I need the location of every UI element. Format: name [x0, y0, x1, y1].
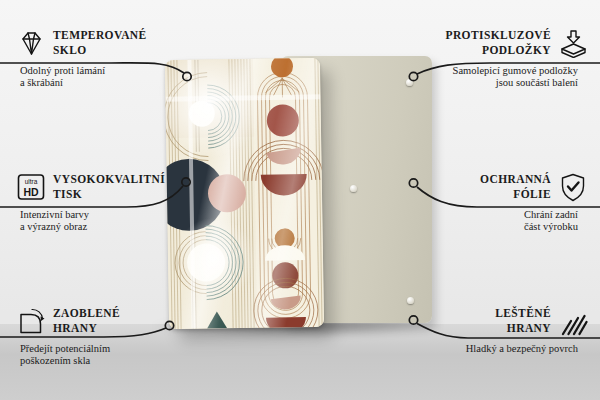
polished-edges-icon — [558, 306, 588, 336]
feature-subtitle: Předejít potenciálním poškozením skla — [20, 343, 110, 367]
feature-title: ZAOBLENÉ HRANY — [53, 306, 120, 336]
feature-subtitle: Odolný proti lámání a škrábání — [20, 65, 105, 89]
anti-slip-pads-icon — [558, 28, 588, 58]
feature-polished-edges: LEŠTĚNÉ HRANY Hladký a bezpečný povrch — [388, 306, 588, 336]
feature-title: LEŠTĚNÉ HRANY — [495, 306, 551, 336]
rounded-corner-icon — [16, 306, 46, 336]
ultra-hd-icon: ultra HD — [16, 172, 46, 202]
anti-slip-pad-dot — [407, 297, 414, 304]
anti-slip-pad-dot — [406, 79, 413, 86]
feature-title: TEMPEROVANÉ SKLO — [53, 28, 147, 58]
shield-check-icon — [558, 172, 588, 202]
feature-rounded-edges: ZAOBLENÉ HRANY Předejít potenciálním poš… — [16, 306, 196, 336]
feature-subtitle: Chrání zadní část výrobku — [524, 209, 578, 233]
feature-high-quality-print: ultra HD VYSOKOKVALITNÍ TISK Intenzivní … — [16, 172, 186, 202]
feature-tempered-glass: TEMPEROVANÉ SKLO Odolný proti lámání a š… — [16, 28, 186, 58]
feature-title: VYSOKOKVALITNÍ TISK — [53, 172, 165, 202]
anti-slip-pad-dot — [350, 185, 357, 192]
product-infographic: TEMPEROVANÉ SKLO Odolný proti lámání a š… — [0, 0, 600, 400]
glass-board-front-panel — [165, 58, 324, 329]
feature-subtitle: Samolepicí gumové podložky jsou součástí… — [453, 65, 578, 89]
feature-title: PROTISKLUZOVÉ PODLOŽKY — [445, 28, 551, 58]
feature-title: OCHRANNÁ FÓLIE — [480, 172, 551, 202]
boho-artwork — [165, 58, 324, 329]
diamond-icon — [16, 28, 46, 58]
svg-text:ultra: ultra — [25, 178, 38, 185]
feature-subtitle: Intenzivní barvy a výrazný obraz — [20, 209, 89, 233]
feature-anti-slip-pads: PROTISKLUZOVÉ PODLOŽKY Samolepicí gumové… — [388, 28, 588, 58]
feature-subtitle: Hladký a bezpečný povrch — [466, 343, 578, 355]
feature-protective-film: OCHRANNÁ FÓLIE Chrání zadní část výrobku — [408, 172, 588, 202]
svg-text:HD: HD — [23, 186, 39, 198]
